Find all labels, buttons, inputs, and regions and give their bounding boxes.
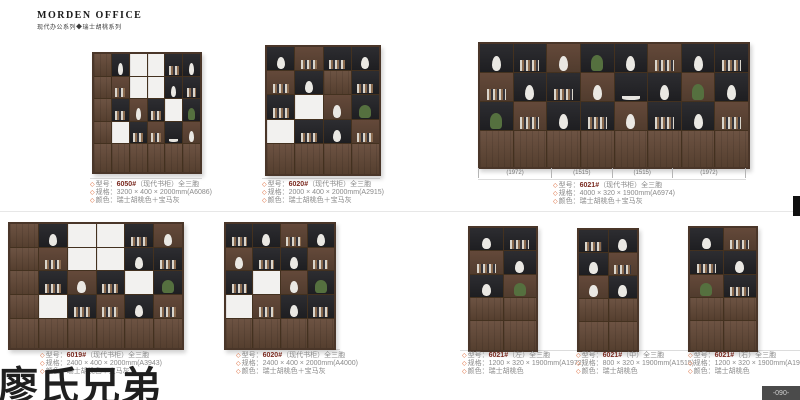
cabinet-cell [504, 321, 537, 350]
cabinet-cell [148, 122, 165, 144]
caption-color-line: ◇颜色：瑞士胡桃色 [688, 368, 800, 376]
model-label: 型号： [694, 352, 715, 359]
cabinet-cell [183, 54, 200, 76]
cabinet-cell [609, 230, 638, 252]
cabinet-cell [68, 248, 96, 271]
caption-size-line: ◇规格：1200 × 320 × 1900mm(A1972) [688, 360, 800, 368]
cabinet-cell [308, 248, 334, 271]
model-desc: （现代书柜）全三胞 [308, 181, 371, 188]
cabinet-cell [690, 298, 723, 320]
cabinet-cell [165, 122, 182, 144]
cabinet-cell [281, 224, 307, 247]
cabinet-cell [715, 102, 748, 130]
cabinet-cell [308, 295, 334, 318]
vase-decor [660, 85, 669, 100]
vase-decor [626, 56, 635, 71]
books-decor [115, 88, 125, 97]
brand-subtitle: 现代办公系列◆瑞士胡桃系列 [37, 22, 122, 31]
books-decor [722, 117, 741, 128]
caption-size-line: ◇规格：1200 × 320 × 1900mm(A1972) [462, 360, 584, 368]
brand-title: MORDEN OFFICE [37, 10, 142, 21]
cabinet-cell [165, 77, 182, 99]
caption-model-line: ◇型号：6021#（左）全三胞 [462, 352, 584, 360]
size-value: 800 × 320 × 1900mm(A1515) [603, 360, 694, 367]
cabinet-cell [226, 248, 252, 271]
cabinet-cell [281, 248, 307, 271]
cabinet-cell [609, 299, 638, 321]
cabinet-cell [504, 228, 537, 250]
cabinet-cell [514, 44, 547, 72]
cabinet-cell [352, 120, 379, 143]
cabinet-cell [112, 144, 129, 172]
cabinet-cell [10, 271, 38, 294]
cabinet-cell [579, 276, 608, 298]
vase-decor [589, 262, 598, 273]
size-label: 规格： [268, 189, 289, 196]
product-image-6021 [478, 42, 746, 165]
caption-size-line: ◇规格：4000 × 320 × 1900mm(A6974) [553, 190, 675, 198]
caption-color-line: ◇颜色：瑞士胡桃色＋宝马灰 [236, 368, 358, 376]
watermark-text: 廖氏兄弟 [0, 354, 162, 400]
plant-decor [591, 55, 603, 71]
caption-model-line: ◇型号：6021#（中）全三胞 [576, 352, 694, 360]
cabinet-cell [615, 44, 648, 72]
cabinet-cell [154, 319, 182, 348]
cabinet-cell [579, 299, 608, 321]
diamond-bullet-icon: ◇ [90, 198, 95, 204]
caption-color-line: ◇颜色：瑞士胡桃色 [462, 368, 584, 376]
cabinet-cell [504, 251, 537, 273]
cabinet-cell [514, 73, 547, 101]
color-label: 颜色： [468, 368, 489, 375]
cabinet-cell [112, 54, 129, 76]
books-decor [102, 307, 118, 316]
cabinet-cell [130, 122, 147, 144]
product-image-6020 [224, 222, 332, 346]
cabinet-cell [579, 322, 608, 350]
cabinet-cell [253, 295, 279, 318]
vase-decor [702, 238, 711, 250]
size-label: 规格： [694, 360, 715, 367]
cabinet-cell [682, 102, 715, 130]
cabinet-cell [615, 73, 648, 101]
vase-decor [618, 239, 627, 250]
vase-decor [290, 305, 298, 317]
vase-decor [618, 285, 627, 296]
size-value: 4000 × 320 × 1900mm(A6974) [580, 190, 675, 197]
cabinet-cell [10, 295, 38, 318]
cabinet-cell [690, 321, 723, 350]
cabinet-cell [97, 295, 125, 318]
color-label: 颜色： [96, 197, 117, 204]
cabinet-cell [183, 99, 200, 121]
cabinet-cell [579, 253, 608, 275]
books-decor [232, 237, 247, 246]
cabinet-graphic [577, 228, 639, 352]
vase-decor [525, 85, 534, 100]
vase-decor [626, 114, 635, 129]
model-desc: （左）全三胞 [508, 352, 550, 359]
cabinet-cell [130, 99, 147, 121]
model-number: 6020# [289, 181, 308, 188]
plant-decor [514, 283, 526, 295]
plant-decor [692, 84, 704, 100]
cabinet-cell [480, 73, 513, 101]
cabinet-cell [324, 71, 351, 94]
cabinet-cell [504, 298, 537, 320]
model-desc: （中）全三胞 [622, 352, 664, 359]
vase-decor [589, 285, 598, 296]
books-decor [160, 307, 176, 316]
model-number: 6021# [580, 182, 599, 189]
divider-rule [262, 178, 380, 179]
vase-decor [235, 257, 243, 269]
cabinet-cell [97, 319, 125, 348]
vase-decor [189, 131, 194, 142]
product-caption: ◇型号：6020#（现代书柜）全三胞◇规格：2400 × 400 × 2000m… [236, 352, 358, 376]
books-decor [655, 60, 674, 71]
books-decor [301, 133, 317, 142]
cabinet-cell [154, 224, 182, 247]
books-decor [133, 133, 143, 142]
cabinet-cell [154, 295, 182, 318]
caption-color-line: ◇颜色：瑞士胡桃色 [576, 368, 694, 376]
diamond-bullet-icon: ◇ [576, 353, 581, 359]
cabinet-cell [470, 251, 503, 273]
product-caption: ◇型号：6020#（现代书柜）全三胞◇规格：2000 × 400 × 2000m… [262, 181, 384, 205]
cabinet-graphic [224, 222, 336, 350]
books-decor [151, 133, 161, 142]
cabinet-cell [308, 224, 334, 247]
cabinet-cell [10, 248, 38, 271]
books-decor [151, 111, 161, 120]
page-number-badge: -090- [762, 386, 800, 400]
model-label: 型号： [268, 181, 289, 188]
cabinet-cell [253, 319, 279, 348]
cabinet-cell [480, 102, 513, 130]
divider-rule [478, 179, 746, 180]
model-label: 型号： [582, 352, 603, 359]
books-decor [357, 84, 373, 93]
model-number: 6021# [603, 352, 622, 359]
diamond-bullet-icon: ◇ [462, 361, 467, 367]
vase-decor [189, 63, 194, 74]
cabinet-cell [154, 248, 182, 271]
diamond-bullet-icon: ◇ [90, 190, 95, 196]
cabinet-graphic [468, 226, 538, 352]
segment-width-label: (1972) [478, 168, 552, 178]
cabinet-cell [94, 144, 111, 172]
bowl-decor [169, 139, 178, 142]
caption-color-line: ◇颜色：瑞士胡桃色＋宝马灰 [90, 197, 212, 205]
color-value: 瑞士胡桃色＋宝马灰 [263, 368, 326, 375]
cabinet-cell [97, 271, 125, 294]
segment-width-label: (1515) [552, 168, 612, 178]
plant-decor [700, 283, 712, 295]
cabinet-cell [267, 71, 294, 94]
cabinet-cell [183, 122, 200, 144]
books-decor [614, 265, 631, 274]
cabinet-cell [183, 77, 200, 99]
color-value: 瑞士胡桃色 [715, 368, 750, 375]
cabinet-cell [715, 44, 748, 72]
color-value: 瑞士胡桃色＋宝马灰 [580, 198, 643, 205]
cabinet-cell [514, 102, 547, 130]
cabinet-cell [125, 271, 153, 294]
cabinet-cell [68, 224, 96, 247]
vase-decor [171, 86, 176, 97]
books-decor [187, 88, 197, 97]
cabinet-cell [308, 319, 334, 348]
diamond-bullet-icon: ◇ [90, 182, 95, 188]
cabinet-cell [480, 131, 513, 167]
cabinet-cell [295, 95, 322, 118]
diamond-bullet-icon: ◇ [462, 369, 467, 375]
color-value: 瑞士胡桃色＋宝马灰 [117, 197, 180, 204]
caption-model-line: ◇型号：6020#（现代书柜）全三胞 [262, 181, 384, 189]
books-decor [554, 89, 573, 100]
diamond-bullet-icon: ◇ [262, 182, 267, 188]
books-decor [510, 240, 529, 249]
cabinet-cell [609, 322, 638, 350]
books-decor [655, 117, 674, 128]
cabinet-cell [547, 44, 580, 72]
cabinet-cell [609, 253, 638, 275]
books-decor [160, 260, 176, 269]
model-number: 6021# [715, 352, 734, 359]
model-label: 型号： [96, 181, 117, 188]
segment-width-label: (1515) [613, 168, 673, 178]
diamond-bullet-icon: ◇ [688, 369, 693, 375]
cabinet-cell [724, 321, 757, 350]
cabinet-cell [253, 248, 279, 271]
cabinet-cell [130, 144, 147, 172]
product-image-6020 [265, 45, 377, 172]
caption-size-line: ◇规格：3200 × 400 × 2000mm(A6086) [90, 189, 212, 197]
cabinet-cell [10, 319, 38, 348]
cabinet-cell [615, 102, 648, 130]
cabinet-cell [125, 224, 153, 247]
cabinet-cell [352, 144, 379, 174]
cabinet-cell [724, 251, 757, 273]
vase-decor [559, 114, 568, 129]
model-label: 型号： [242, 352, 263, 359]
cabinet-cell [183, 144, 200, 172]
cabinet-cell [648, 73, 681, 101]
cabinet-cell [547, 102, 580, 130]
model-desc: （右）全三胞 [734, 352, 776, 359]
vase-decor [727, 85, 736, 100]
model-number: 6020# [263, 352, 282, 359]
vase-decor [290, 257, 298, 269]
vase-decor [135, 305, 143, 317]
cabinet-cell [547, 73, 580, 101]
model-desc: （现代书柜）全三胞 [282, 352, 345, 359]
product-image-6019 [8, 222, 180, 346]
cabinet-cell [253, 271, 279, 294]
cabinet-cell [324, 95, 351, 118]
vase-decor [482, 284, 491, 296]
books-decor [588, 117, 607, 128]
cabinet-cell [648, 131, 681, 167]
product-caption: ◇型号：6021#（左）全三胞◇规格：1200 × 320 × 1900mm(A… [462, 352, 584, 376]
cabinet-cell [267, 95, 294, 118]
diamond-bullet-icon: ◇ [576, 369, 581, 375]
cabinet-cell [724, 275, 757, 297]
section-divider [0, 211, 800, 212]
model-desc: （现代书柜）全三胞 [136, 181, 199, 188]
vase-decor [735, 261, 744, 273]
cabinet-cell [724, 298, 757, 320]
cabinet-cell [130, 77, 147, 99]
books-decor [259, 260, 274, 269]
cabinet-cell [94, 54, 111, 76]
cabinet-cell [547, 131, 580, 167]
diamond-bullet-icon: ◇ [236, 353, 241, 359]
cabinet-graphic [265, 45, 381, 176]
cabinet-cell [130, 54, 147, 76]
cabinet-cell [10, 224, 38, 247]
vase-decor [77, 281, 85, 293]
caption-size-line: ◇规格：2400 × 400 × 2000mm(A4000) [236, 360, 358, 368]
cabinet-cell [690, 275, 723, 297]
size-label: 规格： [559, 190, 580, 197]
cabinet-cell [690, 228, 723, 250]
product-image-6021 [468, 226, 534, 348]
cabinet-cell [715, 73, 748, 101]
books-decor [131, 237, 147, 246]
cabinet-cell [308, 271, 334, 294]
caption-color-line: ◇颜色：瑞士胡桃色＋宝马灰 [553, 198, 675, 206]
cabinet-cell [154, 271, 182, 294]
model-number: 6021# [489, 352, 508, 359]
caption-color-line: ◇颜色：瑞士胡桃色＋宝马灰 [262, 197, 384, 205]
color-value: 瑞士胡桃色＋宝马灰 [289, 197, 352, 204]
caption-model-line: ◇型号：6021#（右）全三胞 [688, 352, 800, 360]
cabinet-cell [148, 99, 165, 121]
dimension-segments: (1972)(1515)(1515)(1972) [478, 168, 746, 178]
books-decor [697, 264, 716, 273]
model-label: 型号： [559, 182, 580, 189]
cabinet-cell [112, 77, 129, 99]
color-label: 颜色： [268, 197, 289, 204]
cabinet-cell [324, 47, 351, 70]
cabinet-cell [504, 275, 537, 297]
vase-decor [361, 57, 369, 69]
vase-decor [694, 114, 703, 129]
cabinet-cell [690, 251, 723, 273]
cabinet-cell [480, 44, 513, 72]
size-label: 规格： [468, 360, 489, 367]
cabinet-cell [470, 321, 503, 350]
books-decor [45, 260, 61, 269]
cabinet-cell [470, 228, 503, 250]
size-value: 1200 × 320 × 1900mm(A1972) [715, 360, 800, 367]
size-value: 3200 × 400 × 2000mm(A6086) [117, 189, 212, 196]
vase-decor [317, 234, 325, 246]
cabinet-cell [226, 271, 252, 294]
cabinet-cell [324, 144, 351, 174]
model-label: 型号： [468, 352, 489, 359]
vase-decor [515, 261, 524, 273]
books-decor [74, 307, 90, 316]
cabinet-cell [68, 271, 96, 294]
color-value: 瑞士胡桃色 [489, 368, 524, 375]
cabinet-cell [226, 319, 252, 348]
cabinet-graphic [92, 52, 202, 174]
cabinet-cell [581, 131, 614, 167]
books-decor [487, 89, 506, 100]
cabinet-cell [125, 319, 153, 348]
product-caption: ◇型号：6021#（中）全三胞◇规格：800 × 320 × 1900mm(A1… [576, 352, 694, 376]
cabinet-cell [470, 298, 503, 320]
vase-decor [694, 56, 703, 71]
books-decor [169, 66, 179, 75]
page-edge-tab [793, 196, 800, 216]
books-decor [102, 284, 118, 293]
plant-decor [359, 105, 371, 118]
color-value: 瑞士胡桃色 [603, 368, 638, 375]
books-decor [232, 284, 247, 293]
cabinet-cell [352, 71, 379, 94]
cabinet-cell [68, 319, 96, 348]
cabinet-cell [581, 102, 614, 130]
cabinet-cell [39, 248, 67, 271]
diamond-bullet-icon: ◇ [688, 353, 693, 359]
cabinet-cell [253, 224, 279, 247]
diamond-bullet-icon: ◇ [553, 199, 558, 205]
cabinet-cell [94, 122, 111, 144]
books-decor [520, 60, 539, 71]
cabinet-cell [682, 44, 715, 72]
cabinet-cell [281, 295, 307, 318]
vase-decor [164, 234, 172, 246]
books-decor [357, 133, 373, 142]
cabinet-cell [514, 131, 547, 167]
books-decor [286, 237, 301, 246]
books-decor [520, 117, 539, 128]
vase-decor [290, 281, 298, 293]
books-decor [313, 260, 328, 269]
diamond-bullet-icon: ◇ [688, 361, 693, 367]
vase-decor [135, 257, 143, 269]
cabinet-cell [267, 120, 294, 143]
cabinet-cell [581, 73, 614, 101]
size-value: 1200 × 320 × 1900mm(A1972) [489, 360, 584, 367]
page-number-text: -090- [773, 390, 789, 397]
cabinet-cell [39, 295, 67, 318]
books-decor [585, 242, 602, 251]
vase-decor [49, 234, 57, 246]
cabinet-cell [125, 295, 153, 318]
cabinet-graphic [688, 226, 758, 352]
cabinet-cell [148, 77, 165, 99]
product-caption: ◇型号：6050#（现代书柜）全三胞◇规格：3200 × 400 × 2000m… [90, 181, 212, 205]
vase-decor [333, 130, 341, 142]
vase-decor [262, 234, 270, 246]
product-caption: ◇型号：6021#（右）全三胞◇规格：1200 × 320 × 1900mm(A… [688, 352, 800, 376]
diamond-bullet-icon: ◇ [462, 353, 467, 359]
diamond-bullet-icon: ◇ [553, 191, 558, 197]
cabinet-cell [226, 295, 252, 318]
product-image-6021 [577, 228, 635, 348]
cabinet-graphic [478, 42, 750, 169]
segment-width-label: (1972) [673, 168, 746, 178]
diamond-bullet-icon: ◇ [262, 190, 267, 196]
vase-decor [136, 108, 141, 119]
diamond-bullet-icon: ◇ [576, 361, 581, 367]
cabinet-cell [39, 271, 67, 294]
